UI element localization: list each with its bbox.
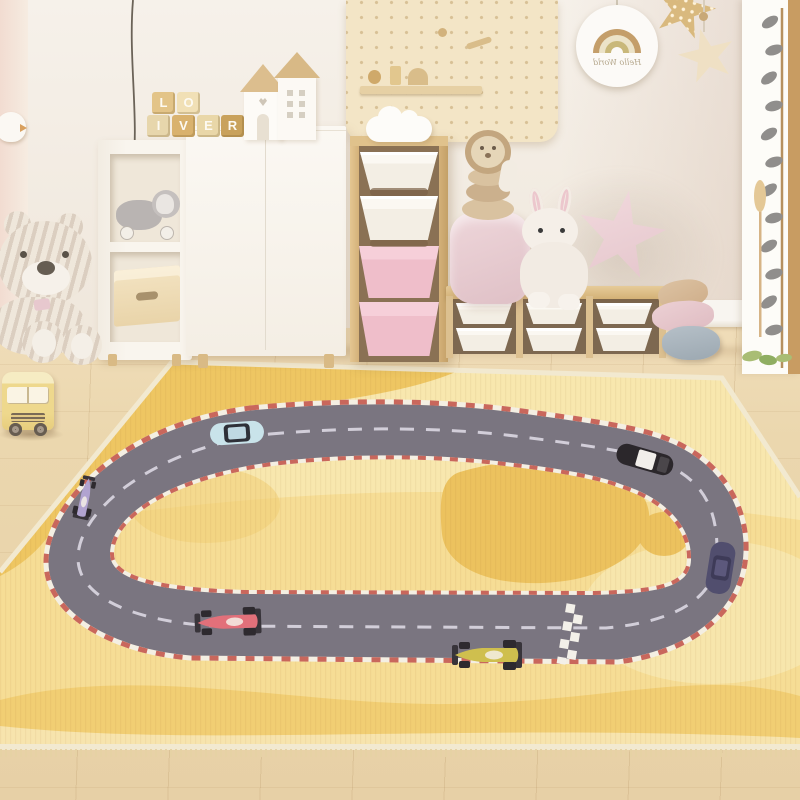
trofast-storage [350, 136, 448, 362]
elephant-ear [156, 194, 174, 214]
white-bin [360, 196, 438, 240]
letter-block: L [152, 92, 175, 114]
house-figurine-tall [278, 76, 316, 140]
bin-toys [370, 188, 428, 196]
letter-block: I [147, 115, 170, 137]
box-handle-slot [136, 291, 158, 301]
unicorn-leg [558, 294, 580, 310]
bus-grille [11, 413, 45, 422]
elephant-wheel [160, 226, 174, 240]
block-letter: R [228, 118, 237, 133]
tree-decal [742, 0, 800, 374]
white-bin [596, 303, 652, 324]
house-door [257, 114, 269, 140]
white-cabinet [186, 126, 346, 356]
bench-post [446, 296, 453, 358]
white-bin [456, 303, 512, 324]
lion-eye [480, 146, 484, 150]
lion-face [471, 136, 505, 168]
block-letter: V [179, 118, 188, 133]
sapling-stem [759, 205, 762, 337]
storage-box [114, 265, 180, 327]
block-letter: I [157, 118, 161, 133]
block-letter: L [160, 95, 168, 110]
teddy-eye [20, 251, 27, 258]
white-bin [596, 328, 652, 351]
white-bin [360, 152, 438, 190]
unicorn-eye [538, 228, 543, 233]
toy-bus [2, 372, 54, 430]
playroom-photo: Hello World [0, 0, 800, 800]
white-bin [526, 328, 582, 351]
bus-wheel [9, 423, 22, 436]
gray-leaves [759, 13, 784, 337]
teddy-nose [37, 261, 55, 275]
teddy-foot-pad [71, 333, 93, 359]
bin-toys [370, 240, 428, 247]
unicorn-leg [528, 292, 550, 308]
lion-nose [485, 153, 491, 158]
teddy-bow [33, 298, 50, 311]
unicorn-eye [560, 228, 565, 233]
letter-block: E [197, 115, 220, 137]
cabinet-leg [198, 354, 208, 368]
house-figurine-small [244, 90, 282, 140]
block-letter: O [183, 95, 193, 110]
toy-car-light-blue [209, 420, 264, 446]
house-windows [287, 90, 293, 96]
pink-bin [359, 302, 439, 356]
bus-wheel [34, 423, 47, 436]
cabinet-leg [324, 354, 334, 368]
bird-ornament [0, 112, 26, 142]
sapling-leaf [754, 180, 766, 212]
stacking-lion-toy [458, 130, 518, 222]
elephant-wheel [120, 226, 134, 240]
teddy-eye [62, 251, 69, 258]
cloud-bump [400, 110, 418, 127]
letter-block: V [172, 115, 195, 137]
white-bin [456, 328, 512, 351]
house-heart-window [259, 98, 267, 106]
letter-block: R [221, 115, 244, 137]
shelf-leg [172, 354, 181, 366]
lion-eye [492, 146, 496, 150]
pink-bin [359, 246, 439, 298]
panel-wood-edge [788, 0, 800, 374]
elephant-toy [114, 188, 184, 236]
cube-shelf [98, 140, 192, 360]
tree-decal-panel [742, 0, 800, 374]
teddy-bear [0, 205, 110, 365]
trofast-rail [350, 136, 359, 362]
letter-block: O [177, 92, 200, 114]
blue-pouf [662, 326, 720, 360]
cloud-bump [378, 106, 402, 128]
bird-beak [20, 124, 27, 132]
unicorn-plush [518, 184, 598, 314]
grass-tufts [742, 349, 792, 366]
block-letter: E [204, 118, 213, 133]
bus-window-divider [27, 387, 29, 404]
teddy-foot-pad [32, 329, 56, 357]
cabinet-door-seam [265, 132, 266, 350]
